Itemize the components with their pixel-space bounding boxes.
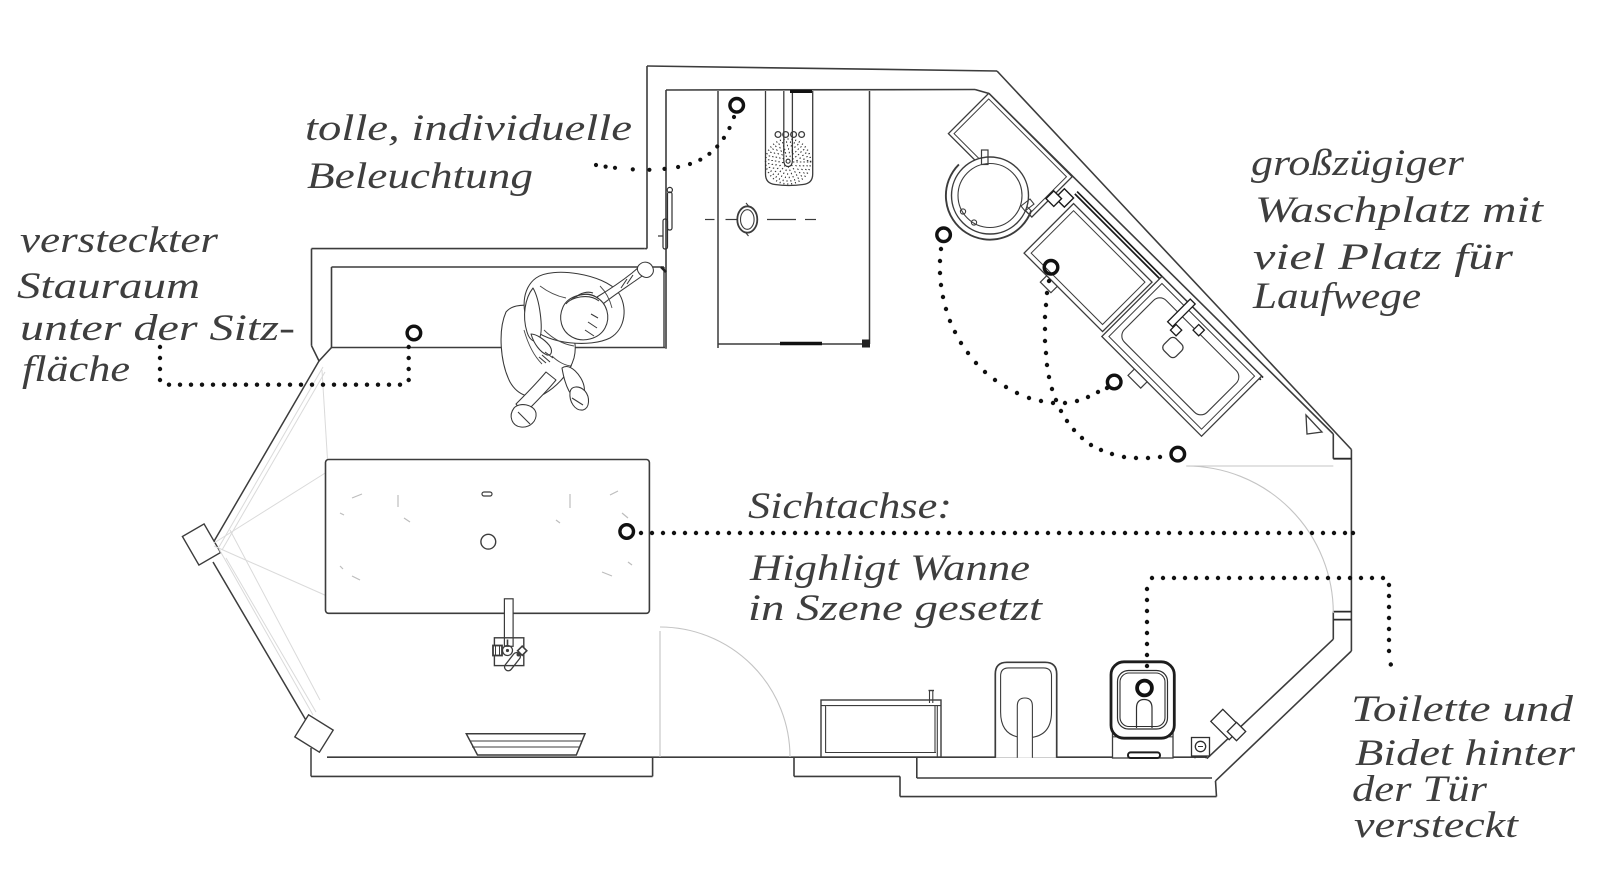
svg-text:Stauraum: Stauraum: [17, 266, 200, 307]
svg-text:großzügiger: großzügiger: [1251, 143, 1465, 184]
svg-text:fläche: fläche: [22, 349, 130, 390]
svg-text:Laufwege: Laufwege: [1252, 276, 1421, 317]
svg-text:der Tür: der Tür: [1352, 769, 1488, 810]
svg-text:Beleuchtung: Beleuchtung: [307, 156, 533, 197]
svg-text:in Szene gesetzt: in Szene gesetzt: [748, 588, 1044, 629]
svg-text:tolle, individuelle: tolle, individuelle: [305, 108, 632, 149]
svg-text:Highligt Wanne: Highligt Wanne: [749, 548, 1030, 589]
svg-text:unter der Sitz-: unter der Sitz-: [20, 308, 295, 349]
svg-text:viel Platz für: viel Platz für: [1253, 237, 1514, 278]
svg-text:versteckt: versteckt: [1354, 805, 1520, 846]
svg-text:Sichtachse:: Sichtachse:: [748, 486, 952, 527]
svg-text:Bidet hinter: Bidet hinter: [1355, 733, 1576, 774]
svg-text:Waschplatz mit: Waschplatz mit: [1255, 190, 1545, 231]
svg-text:Toilette und: Toilette und: [1351, 689, 1574, 730]
svg-text:versteckter: versteckter: [20, 220, 219, 261]
